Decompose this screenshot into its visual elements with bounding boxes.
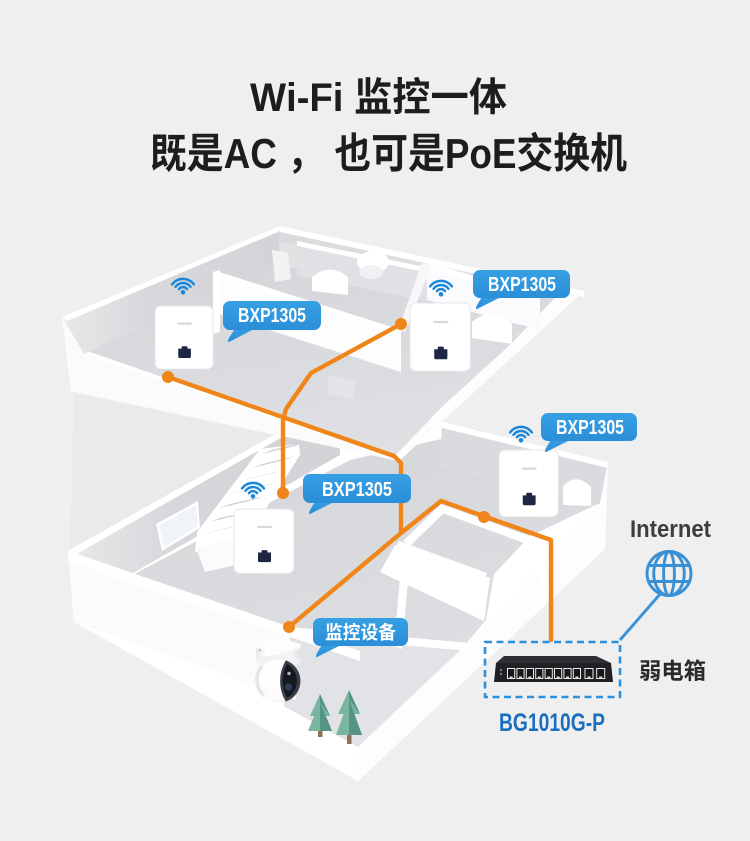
svg-text:BXP1305: BXP1305	[488, 274, 556, 296]
svg-text:BG1010G-P: BG1010G-P	[499, 709, 605, 737]
svg-text:BXP1305: BXP1305	[238, 305, 306, 327]
svg-text:Internet: Internet	[630, 516, 711, 543]
svg-text:BXP1305: BXP1305	[556, 417, 624, 439]
svg-text:BXP1305: BXP1305	[322, 479, 392, 501]
